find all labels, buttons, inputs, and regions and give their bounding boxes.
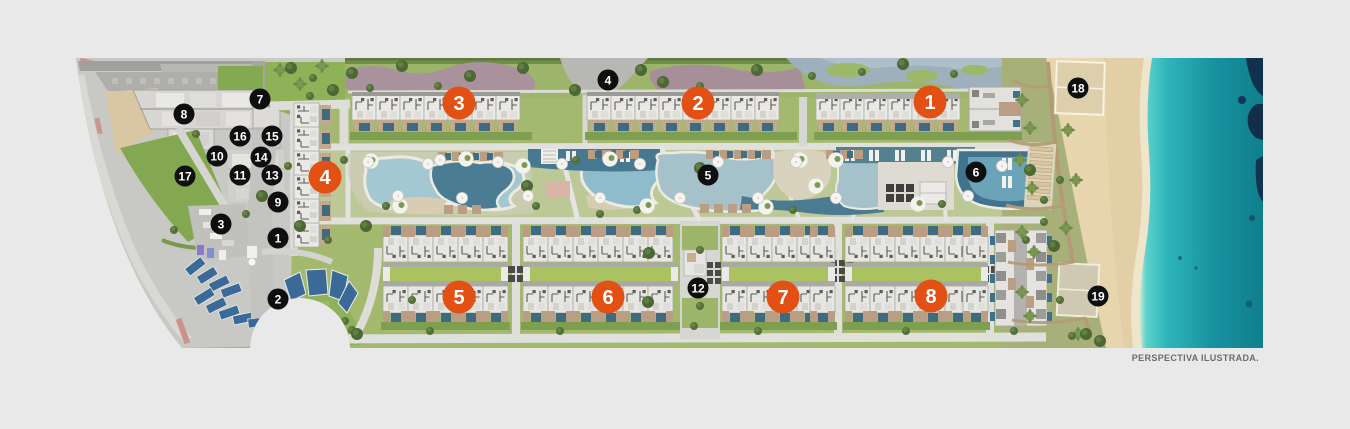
svg-text:4: 4: [605, 74, 612, 88]
svg-text:18: 18: [1071, 82, 1085, 96]
svg-text:12: 12: [691, 282, 705, 296]
svg-text:6: 6: [973, 166, 980, 180]
svg-text:11: 11: [234, 169, 247, 183]
svg-text:7: 7: [257, 93, 264, 107]
svg-text:6: 6: [602, 287, 613, 309]
svg-text:5: 5: [705, 169, 712, 183]
svg-text:1: 1: [275, 232, 282, 246]
svg-text:14: 14: [254, 151, 268, 165]
svg-text:4: 4: [319, 167, 331, 189]
svg-text:13: 13: [265, 169, 279, 183]
svg-text:2: 2: [275, 293, 282, 307]
svg-text:19: 19: [1091, 290, 1105, 304]
svg-text:7: 7: [777, 287, 788, 309]
svg-text:9: 9: [275, 196, 282, 210]
svg-text:16: 16: [233, 130, 247, 144]
svg-text:15: 15: [265, 130, 279, 144]
svg-text:17: 17: [178, 170, 192, 184]
svg-text:PERSPECTIVA ILUSTRADA.: PERSPECTIVA ILUSTRADA.: [1132, 353, 1259, 363]
svg-text:3: 3: [453, 93, 464, 115]
svg-text:8: 8: [925, 286, 936, 308]
svg-text:8: 8: [181, 108, 188, 122]
svg-text:1: 1: [924, 92, 935, 114]
svg-text:3: 3: [218, 218, 225, 232]
svg-text:5: 5: [453, 287, 464, 309]
svg-text:10: 10: [210, 150, 224, 164]
svg-text:2: 2: [692, 93, 703, 115]
